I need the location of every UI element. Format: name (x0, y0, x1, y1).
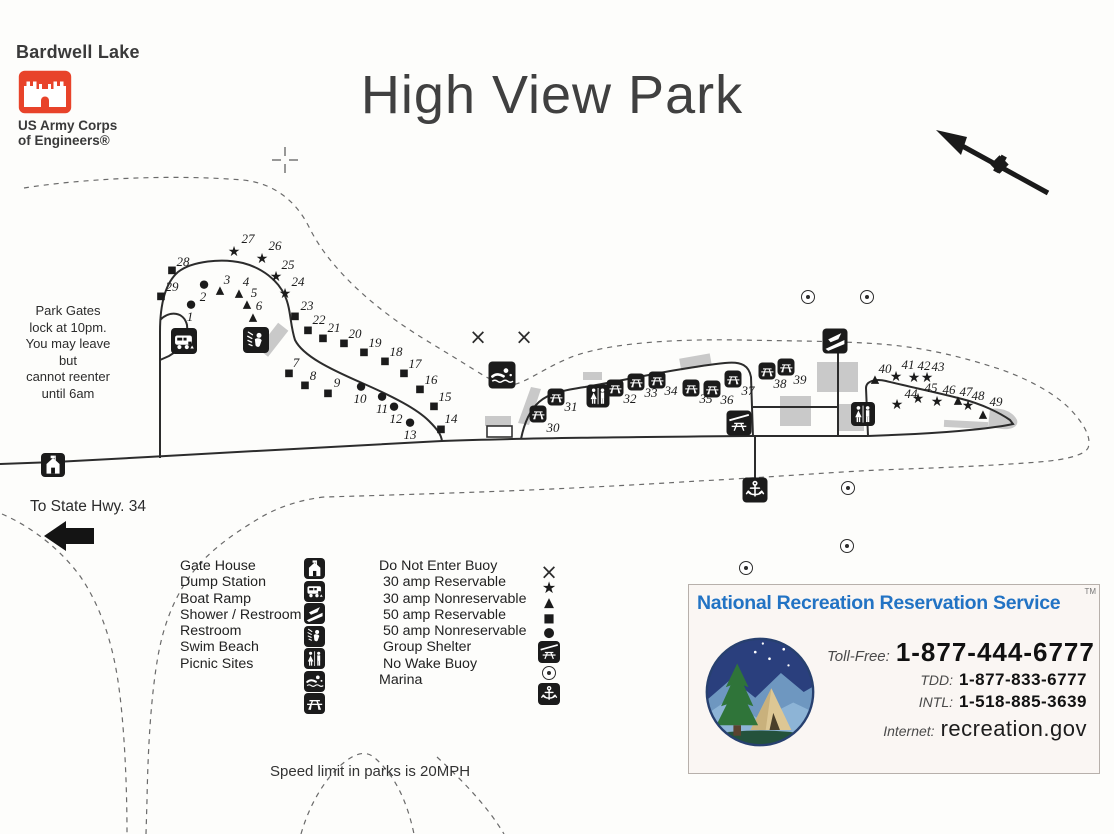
campsite-marker-9: ■ (323, 389, 332, 399)
campsite-number-17: 17 (409, 356, 422, 372)
map-picnic-site-icon-39 (778, 359, 795, 376)
map-picnic-site-icon-31 (548, 389, 565, 406)
legend-symbol-label: 50 amp Nonreservable (379, 623, 526, 639)
park-map-page: Bardwell Lake US Army Corps of Engineers… (0, 0, 1114, 834)
map-picnic-site-icon-34 (649, 372, 666, 389)
no-wake-buoy-marker (860, 290, 874, 304)
campsite-marker-2: ● (199, 279, 209, 290)
campsite-number-28: 28 (177, 254, 190, 270)
legend-facility-labels: Gate HouseDump StationBoat RampShower / … (180, 558, 301, 672)
legend-facility-label: Restroom (180, 623, 301, 639)
nrrs-logo-icon (703, 635, 817, 749)
nrrs-contacts: Toll-Free:1-877-444-6777 TDD:1-877-833-6… (827, 629, 1087, 742)
legend-symbol-label: 30 amp Reservable (379, 574, 526, 590)
map-shower-icon (243, 327, 269, 353)
nrrs-trademark: TM (1084, 587, 1096, 596)
legend-swim-beach-icon (304, 671, 325, 692)
map-picnic-site-icon-35 (683, 380, 700, 397)
legend-facility-label: Swim Beach (180, 639, 301, 655)
legend-symbol-label: Group Shelter (379, 639, 526, 655)
legend-facility-label: Gate House (180, 558, 301, 574)
campsite-number-11: 11 (376, 401, 388, 417)
campsite-marker-8: ■ (300, 381, 309, 391)
nrrs-internet-row: Internet:recreation.gov (827, 716, 1087, 742)
legend-symbol-labels: Do Not Enter Buoy 30 amp Reservable 30 a… (379, 558, 526, 688)
nrrs-internet-label: Internet: (883, 723, 934, 739)
campsite-number-12: 12 (390, 411, 403, 427)
campsite-number-31: 31 (565, 399, 578, 415)
campsite-number-2: 2 (200, 289, 207, 305)
no-wake-buoy-marker (840, 539, 854, 553)
map-picnic-site-icon-30 (530, 406, 547, 423)
campsite-marker-16: ■ (415, 385, 424, 395)
legend-symbol-label: No Wake Buoy (379, 656, 526, 672)
campsite-marker-17: ■ (399, 369, 408, 379)
campsite-marker-1: ● (186, 299, 196, 310)
legend-boat-ramp-icon (304, 603, 325, 624)
campsite-number-19: 19 (369, 335, 382, 351)
campsite-marker-20: ■ (339, 339, 348, 349)
nrrs-intl-label: INTL: (919, 694, 953, 710)
campsite-number-43: 43 (932, 359, 945, 375)
campsite-marker-19: ■ (359, 348, 368, 358)
campsite-number-48: 48 (972, 388, 985, 404)
map-boat-ramp-icon (823, 329, 848, 354)
campsite-marker-12: ● (389, 401, 399, 412)
legend-symbol-group-shelter (538, 641, 560, 663)
campsite-number-24: 24 (292, 274, 305, 290)
campsite-marker-44: ★ (891, 398, 904, 412)
campsite-marker-10: ● (356, 381, 366, 392)
campsite-number-4: 4 (243, 274, 250, 290)
map-restroom-icon (587, 385, 610, 408)
do-not-enter-buoy-marker: × (515, 325, 533, 349)
campsite-number-7: 7 (293, 355, 300, 371)
campsite-marker-13: ● (405, 417, 415, 428)
campsite-number-16: 16 (425, 372, 438, 388)
legend-symbol-no-wake (542, 666, 556, 680)
legend-symbol-star: ★ (542, 580, 556, 596)
legend-symbol-label: 30 amp Nonreservable (379, 591, 526, 607)
campsite-number-3: 3 (224, 272, 231, 288)
campsite-number-21: 21 (328, 320, 341, 336)
nrrs-tollfree-number: 1-877-444-6777 (896, 637, 1095, 667)
campsite-number-49: 49 (990, 394, 1003, 410)
campsite-number-30: 30 (547, 420, 560, 436)
map-gate-house-icon (41, 453, 65, 477)
nrrs-intl-row: INTL:1-518-885-3639 (827, 692, 1087, 712)
campsite-number-39: 39 (794, 372, 807, 388)
map-restroom-icon (851, 402, 875, 426)
campsite-marker-24: ★ (279, 287, 292, 301)
map-marina-icon (743, 478, 768, 503)
campsite-marker-28: ■ (167, 266, 176, 276)
legend-gate-house-icon (304, 558, 325, 579)
campsite-number-18: 18 (390, 344, 403, 360)
legend-symbol-square: ■ (543, 612, 554, 624)
campsite-marker-26: ★ (256, 252, 269, 266)
nrrs-tdd-number: 1-877-833-6777 (959, 670, 1087, 689)
map-picnic-site-icon-33 (628, 374, 645, 391)
campsite-number-6: 6 (256, 298, 263, 314)
campsite-marker-15: ■ (429, 402, 438, 412)
campsite-marker-25: ★ (270, 270, 283, 284)
legend-symbol-circle: ● (543, 627, 554, 640)
nrrs-tdd-label: TDD: (920, 672, 953, 688)
legend-symbol-label: 50 amp Reservable (379, 607, 526, 623)
campsite-number-1: 1 (187, 309, 194, 325)
legend-symbol-marina (538, 683, 560, 705)
map-swim-beach-icon (489, 362, 516, 389)
nrrs-card: National Recreation Reservation Service … (688, 584, 1100, 774)
campsite-marker-27: ★ (228, 245, 241, 259)
campsite-marker-46: ★ (931, 395, 944, 409)
legend-symbol-label: Marina (379, 672, 526, 688)
campsite-number-37: 37 (742, 383, 755, 399)
map-dump-station-icon (171, 328, 197, 354)
legend-facility-label: Shower / Restroom (180, 607, 301, 623)
campsite-number-9: 9 (334, 375, 341, 391)
campsite-number-26: 26 (269, 238, 282, 254)
campsite-number-23: 23 (301, 298, 314, 314)
map-picnic-site-icon-37 (725, 371, 742, 388)
nrrs-tollfree-row: Toll-Free:1-877-444-6777 (827, 637, 1087, 668)
campsite-number-10: 10 (354, 391, 367, 407)
campsite-number-34: 34 (665, 383, 678, 399)
nrrs-tollfree-label: Toll-Free: (827, 648, 890, 665)
no-wake-buoy-marker (739, 561, 753, 575)
campsite-number-22: 22 (313, 312, 326, 328)
legend-facility-label: Picnic Sites (180, 656, 301, 672)
campsite-number-27: 27 (242, 231, 255, 247)
legend-facility-label: Boat Ramp (180, 591, 301, 607)
campsite-marker-49: ▲ (979, 409, 987, 420)
legend-symbol-triangle: ▲ (544, 597, 554, 610)
nrrs-intl-number: 1-518-885-3639 (959, 692, 1087, 711)
legend-shower-icon (304, 626, 325, 647)
legend-facility-label: Dump Station (180, 574, 301, 590)
nrrs-tdd-row: TDD:1-877-833-6777 (827, 670, 1087, 690)
campsite-number-13: 13 (404, 427, 417, 443)
campsite-marker-21: ■ (318, 334, 327, 344)
legend-picnic-icon (304, 693, 325, 714)
no-wake-buoy-marker (841, 481, 855, 495)
campsite-marker-45: ★ (912, 392, 925, 406)
campsite-marker-22: ■ (303, 326, 312, 336)
campsite-marker-29: ■ (156, 292, 165, 302)
campsite-number-8: 8 (310, 368, 317, 384)
legend-symbol-label: Do Not Enter Buoy (379, 558, 526, 574)
campsite-marker-18: ■ (380, 357, 389, 367)
nrrs-website: recreation.gov (941, 716, 1087, 741)
legend-facility-icons (304, 558, 325, 716)
campsite-marker-23: ■ (290, 312, 299, 322)
campsite-marker-11: ● (377, 391, 387, 402)
legend-dump-station-icon (304, 581, 325, 602)
nrrs-title: National Recreation Reservation Service (697, 592, 1060, 615)
campsite-number-14: 14 (445, 411, 458, 427)
do-not-enter-buoy-marker: × (469, 325, 487, 349)
map-picnic-site-icon-36 (704, 381, 721, 398)
campsite-number-25: 25 (282, 257, 295, 273)
campsite-marker-41: ★ (890, 370, 903, 384)
campsite-number-32: 32 (624, 391, 637, 407)
legend-restroom-icon (304, 648, 325, 669)
campsite-number-20: 20 (349, 326, 362, 342)
campsite-number-36: 36 (721, 392, 734, 408)
no-wake-buoy-marker (801, 290, 815, 304)
campsite-number-38: 38 (774, 376, 787, 392)
campsite-number-29: 29 (166, 279, 179, 295)
campsite-number-15: 15 (439, 389, 452, 405)
map-group-shelter-icon (727, 411, 752, 436)
